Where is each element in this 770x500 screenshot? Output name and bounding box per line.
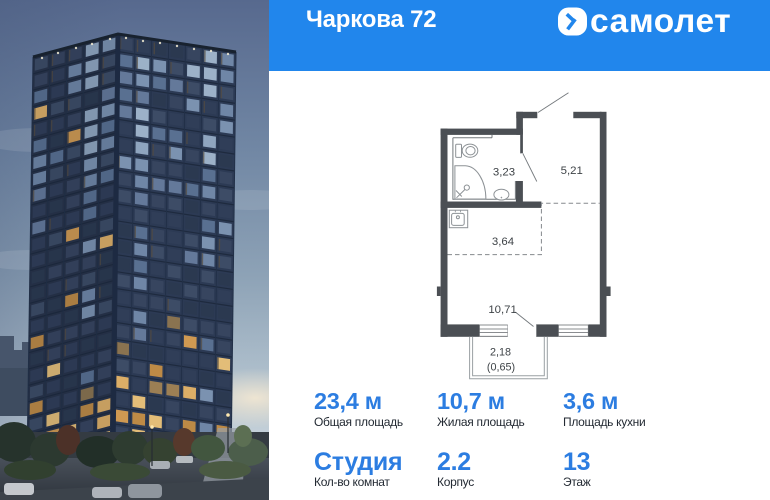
- svg-text:3,64: 3,64: [492, 236, 514, 248]
- svg-text:2,18: 2,18: [490, 347, 511, 359]
- svg-text:10,71: 10,71: [488, 304, 517, 316]
- svg-text:3,23: 3,23: [493, 166, 515, 178]
- svg-text:5,21: 5,21: [561, 165, 583, 177]
- svg-text:(0,65): (0,65): [487, 362, 515, 374]
